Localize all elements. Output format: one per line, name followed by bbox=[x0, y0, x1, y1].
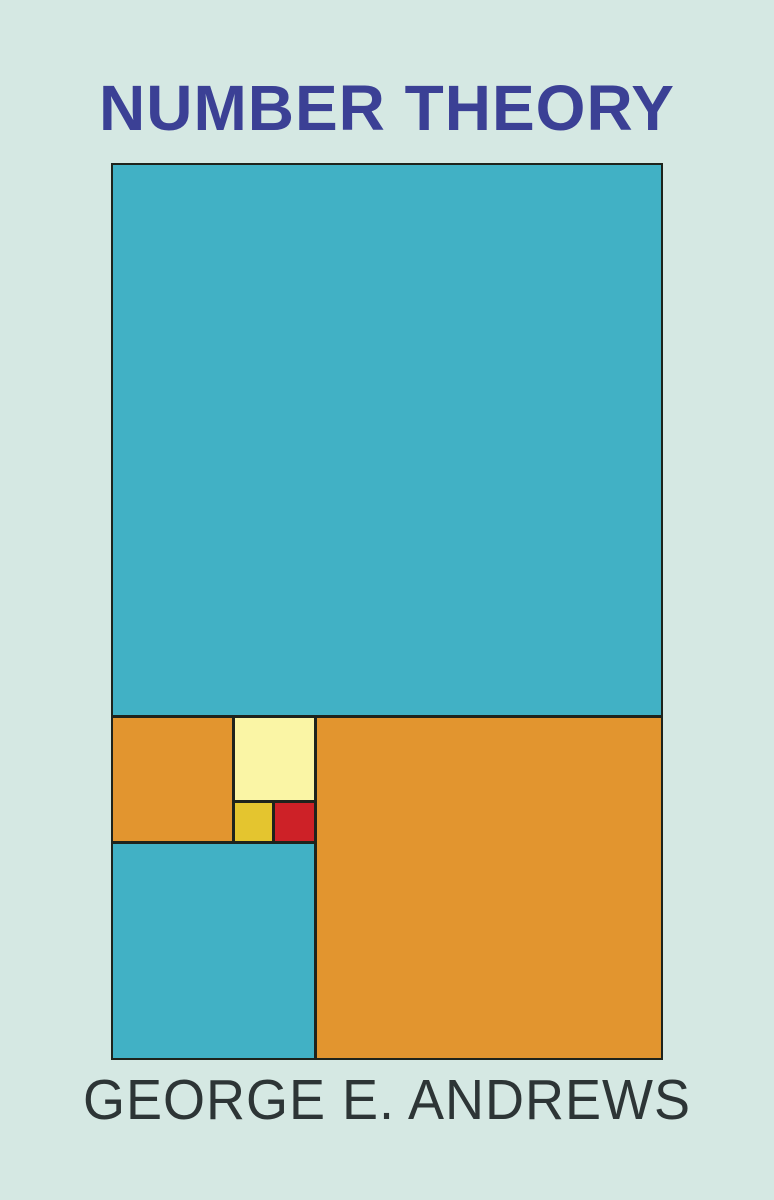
book-title: NUMBER THEORY bbox=[0, 76, 774, 140]
book-author: GEORGE E. ANDREWS bbox=[0, 1072, 774, 1128]
bottom-cyan-square bbox=[113, 844, 314, 1058]
red-tiny-square bbox=[275, 803, 314, 841]
yellow-tiny-square bbox=[235, 803, 272, 841]
cream-square bbox=[235, 718, 314, 800]
large-orange-square bbox=[317, 718, 661, 1058]
large-teal-square bbox=[113, 165, 661, 715]
fibonacci-golden-rectangle-figure bbox=[111, 163, 663, 1060]
small-orange-square bbox=[113, 718, 232, 841]
